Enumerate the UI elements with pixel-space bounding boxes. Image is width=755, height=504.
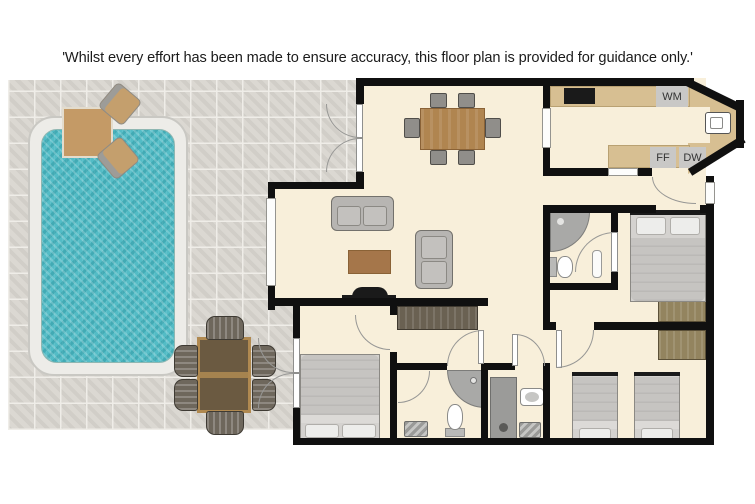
wardrobe [658,330,706,360]
shower-drain [499,423,508,432]
pillow [305,424,339,438]
pillow [670,217,700,235]
wall [390,352,397,445]
shower-head [557,218,564,225]
wall [356,78,364,104]
wall [356,78,694,86]
outdoor-chair [174,345,198,377]
tv-screen [352,287,388,297]
pillow [636,217,666,235]
sofa-cushion [363,206,387,226]
window [266,198,276,286]
duvet [573,377,617,421]
washing-machine: WM [656,86,688,107]
dining-chair [430,93,447,108]
radiator [404,421,428,437]
wall [543,322,556,330]
wall [700,205,706,213]
duvet [631,238,705,301]
headboard [634,372,680,376]
kitchen-counter [608,145,690,168]
radiator [519,422,541,438]
wall [397,363,447,370]
toilet [557,256,573,278]
door-leaf [293,338,300,373]
outdoor-dining-table [197,337,251,413]
dining-chair [430,150,447,165]
dining-chair [485,118,501,138]
headboard [572,372,618,376]
coffee-table [348,250,391,274]
basin-bowl [525,392,539,402]
wall [543,283,618,290]
wall [543,168,608,176]
outdoor-chair [206,316,244,340]
dining-chair [404,118,420,138]
wall [543,363,550,445]
wall [638,168,652,176]
shower-head [470,377,477,384]
dining-chair [458,150,475,165]
floor-plan: 'Whilst every effort has been made to en… [0,0,755,504]
outdoor-chair [174,379,198,411]
sofa-cushion [421,236,447,259]
door-leaf [293,373,300,408]
wardrobe [397,306,478,330]
sofa-cushion [337,206,361,226]
wall [268,298,488,306]
window [608,168,638,176]
wall [611,205,618,232]
dining-chair [458,93,475,108]
disclaimer-text: 'Whilst every effort has been made to en… [0,50,755,66]
window [542,108,551,148]
window [705,182,715,204]
wall [543,205,656,213]
wall [293,438,713,445]
toilet [447,404,463,430]
wall [481,363,488,438]
pillow [342,424,376,438]
wall [390,306,397,315]
outdoor-chair [206,411,244,435]
dining-table [420,108,485,150]
duvet [301,355,379,415]
wall [594,322,706,330]
wall [543,86,550,108]
wall [543,205,550,322]
toilet-tank [549,257,557,277]
wall [706,176,714,445]
wall [293,303,300,338]
sofa-cushion [421,261,447,284]
fridge-freezer: FF [650,147,676,168]
sink-basin [710,117,723,129]
hob [564,88,595,104]
wardrobe [658,300,706,322]
wall [268,182,364,189]
sheet [301,415,379,423]
duvet [635,377,679,421]
